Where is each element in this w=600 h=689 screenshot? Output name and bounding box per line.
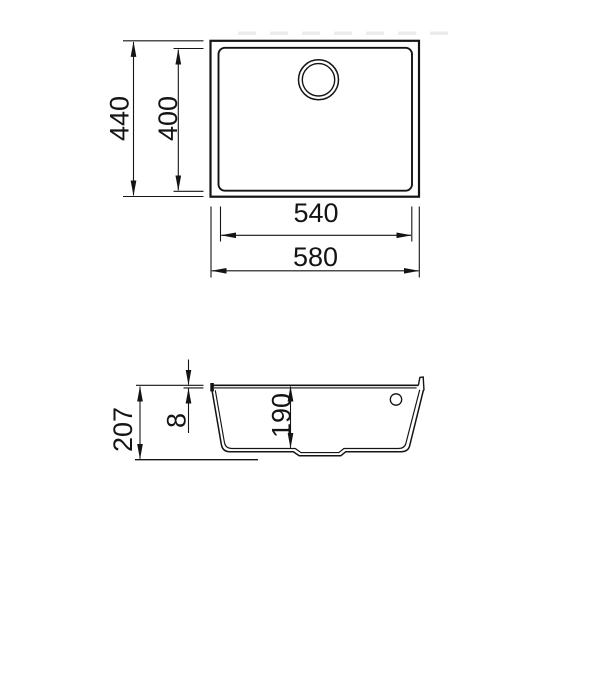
sink-basin-edge (219, 48, 413, 191)
dim-rim-thickness-label: 8 (161, 413, 191, 428)
left-rim-lip (210, 383, 214, 391)
bowl-outer-profile (212, 390, 424, 456)
dim-bowl-depth: 190 (266, 387, 296, 448)
dim-rim-thickness: 8 (161, 360, 203, 434)
dim-overall-depth-label: 440 (104, 96, 134, 141)
dim-bowl-depth-label: 190 (266, 393, 296, 438)
dim-inner-width: 540 (221, 198, 412, 242)
bowl-inner-profile (215, 390, 419, 453)
dim-inner-width-label: 540 (293, 198, 338, 228)
technical-drawing: 440 400 540 580 (0, 0, 600, 689)
sink-section-view: 207 8 190 (108, 360, 424, 460)
cropped-artifact-dashes (238, 32, 448, 36)
dim-overall-height-label: 207 (108, 407, 138, 452)
overflow-hole-icon (390, 394, 401, 405)
sink-plan-view: 440 400 540 580 (104, 41, 419, 278)
dim-inner-depth: 400 (153, 49, 204, 192)
dim-overall-width-label: 580 (293, 242, 338, 272)
drain-icon (299, 60, 339, 100)
dim-inner-depth-label: 400 (153, 96, 183, 141)
right-rim-lip (418, 377, 424, 391)
